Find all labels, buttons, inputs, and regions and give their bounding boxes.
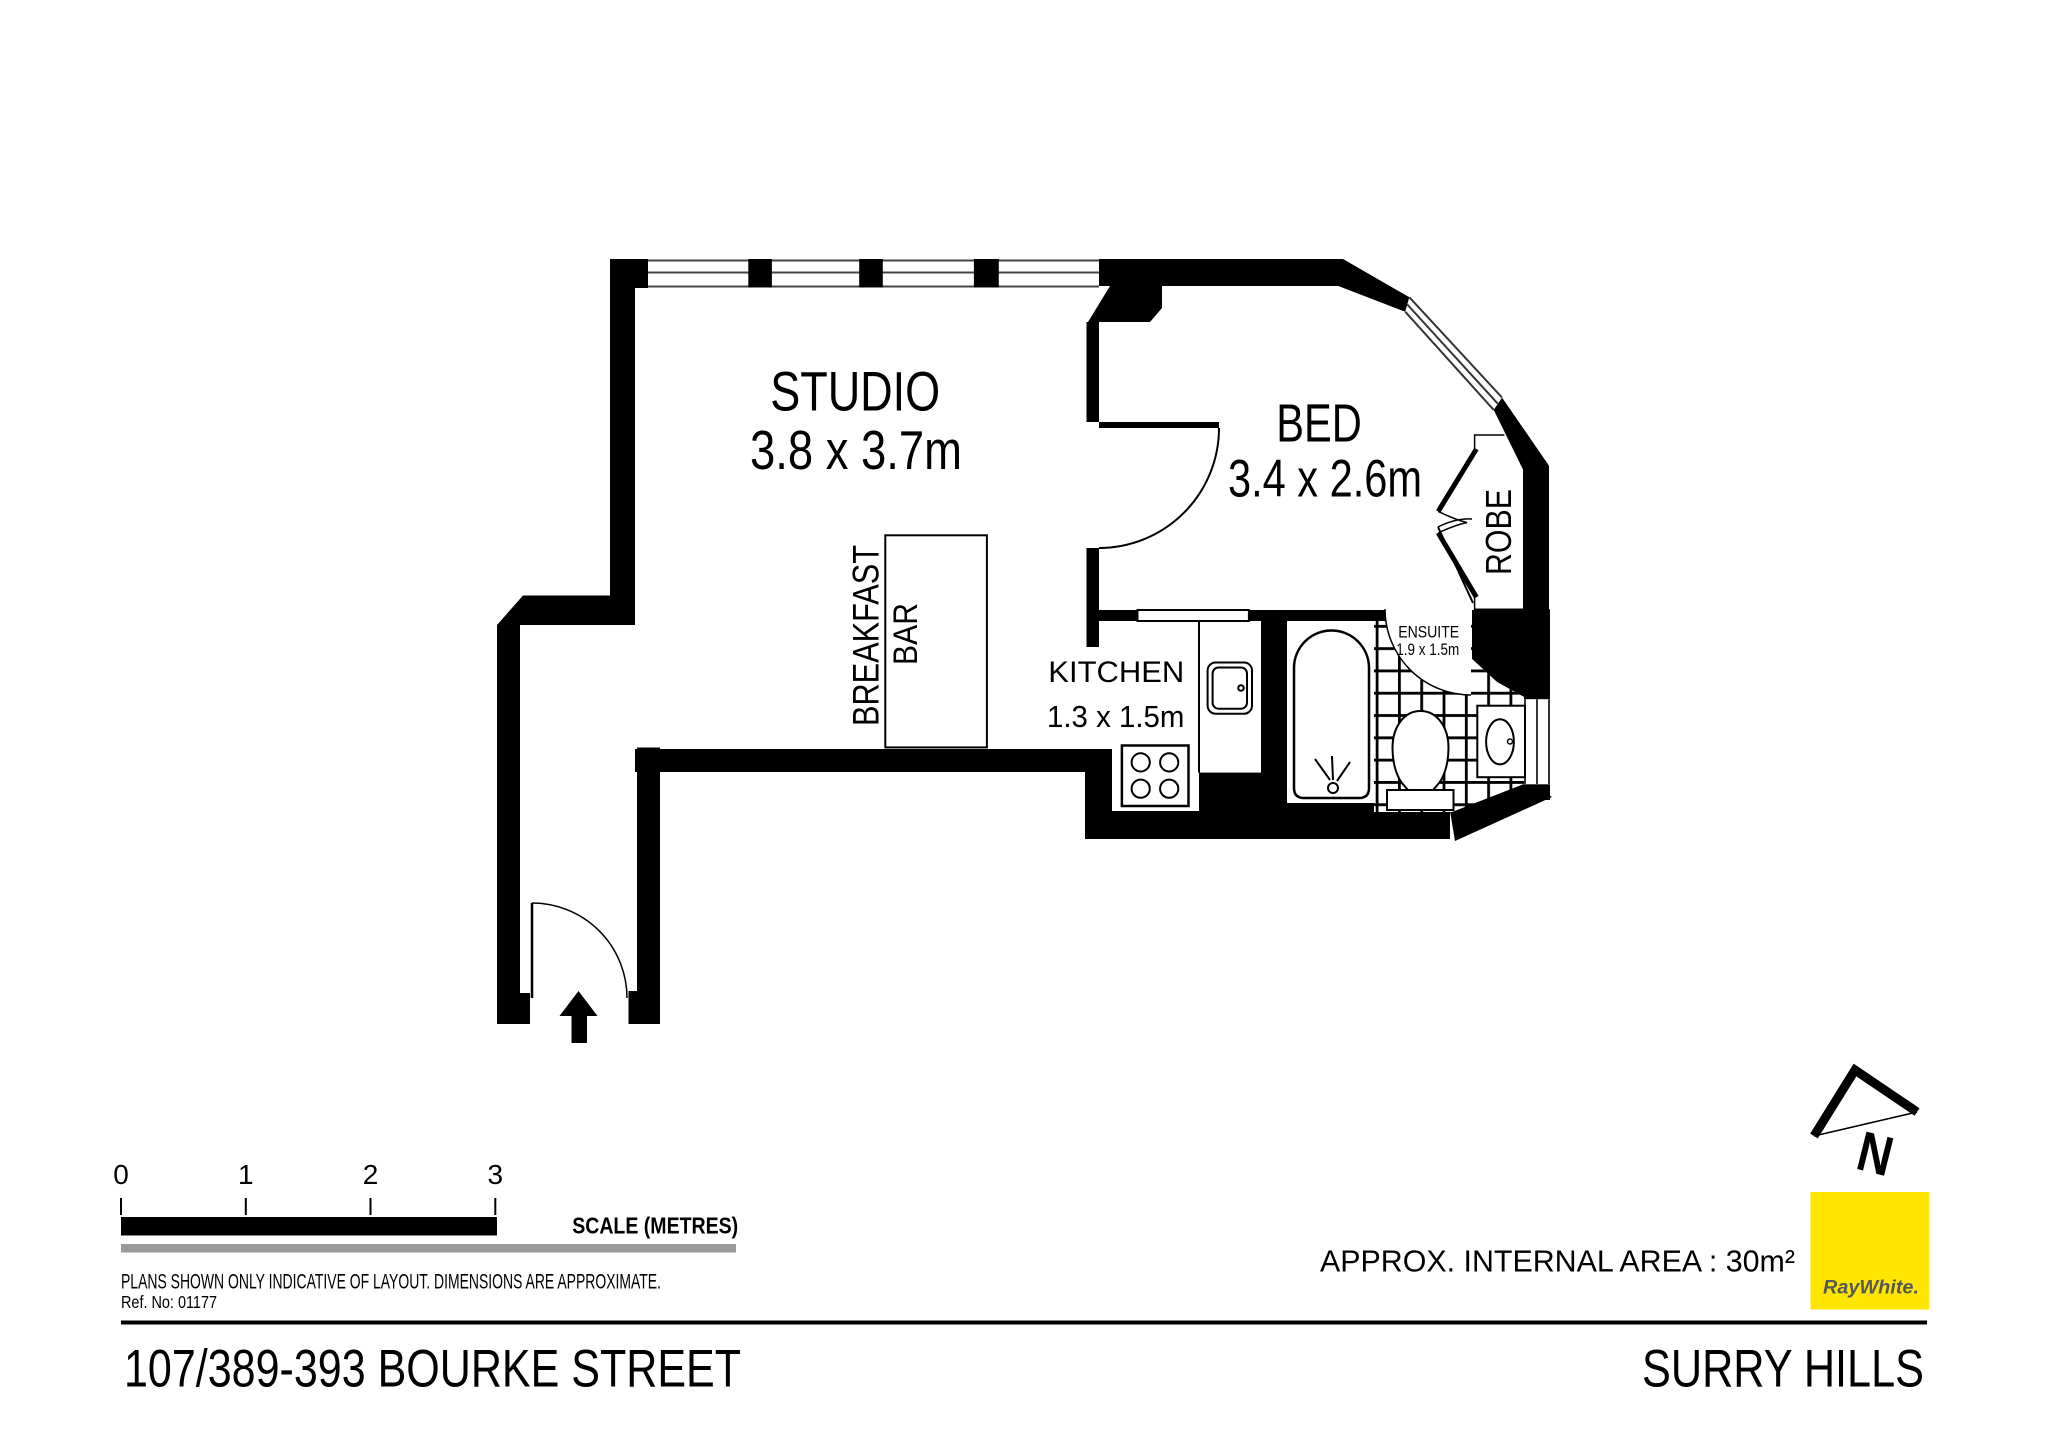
svg-text:APPROX. INTERNAL AREA : 30m²: APPROX. INTERNAL AREA : 30m² bbox=[1320, 1245, 1795, 1279]
svg-text:SURRY HILLS: SURRY HILLS bbox=[1642, 1340, 1924, 1399]
svg-text:3.4 x 2.6m: 3.4 x 2.6m bbox=[1228, 450, 1422, 508]
svg-text:107/389-393 BOURKE STREET: 107/389-393 BOURKE STREET bbox=[124, 1340, 741, 1399]
svg-text:SCALE (METRES): SCALE (METRES) bbox=[572, 1213, 738, 1239]
svg-text:3: 3 bbox=[488, 1159, 504, 1190]
svg-text:BREAKFAST: BREAKFAST bbox=[846, 545, 887, 726]
svg-text:BAR: BAR bbox=[887, 603, 925, 665]
svg-text:RayWhite.: RayWhite. bbox=[1823, 1277, 1919, 1299]
svg-text:1.3 x 1.5m: 1.3 x 1.5m bbox=[1047, 699, 1184, 734]
svg-text:1.9 x 1.5m: 1.9 x 1.5m bbox=[1396, 641, 1459, 659]
svg-text:BED: BED bbox=[1276, 395, 1362, 454]
svg-text:KITCHEN: KITCHEN bbox=[1048, 656, 1184, 689]
svg-text:ENSUITE: ENSUITE bbox=[1398, 623, 1459, 641]
svg-text:3.8 x 3.7m: 3.8 x 3.7m bbox=[750, 419, 962, 481]
svg-text:1: 1 bbox=[238, 1159, 254, 1190]
svg-text:ROBE: ROBE bbox=[1478, 489, 1519, 575]
svg-text:2: 2 bbox=[363, 1159, 379, 1190]
svg-text:Ref. No: 01177: Ref. No: 01177 bbox=[121, 1292, 217, 1312]
svg-text:STUDIO: STUDIO bbox=[770, 359, 940, 422]
svg-text:0: 0 bbox=[113, 1159, 129, 1190]
svg-text:PLANS SHOWN ONLY INDICATIVE OF: PLANS SHOWN ONLY INDICATIVE OF LAYOUT. D… bbox=[121, 1270, 661, 1293]
